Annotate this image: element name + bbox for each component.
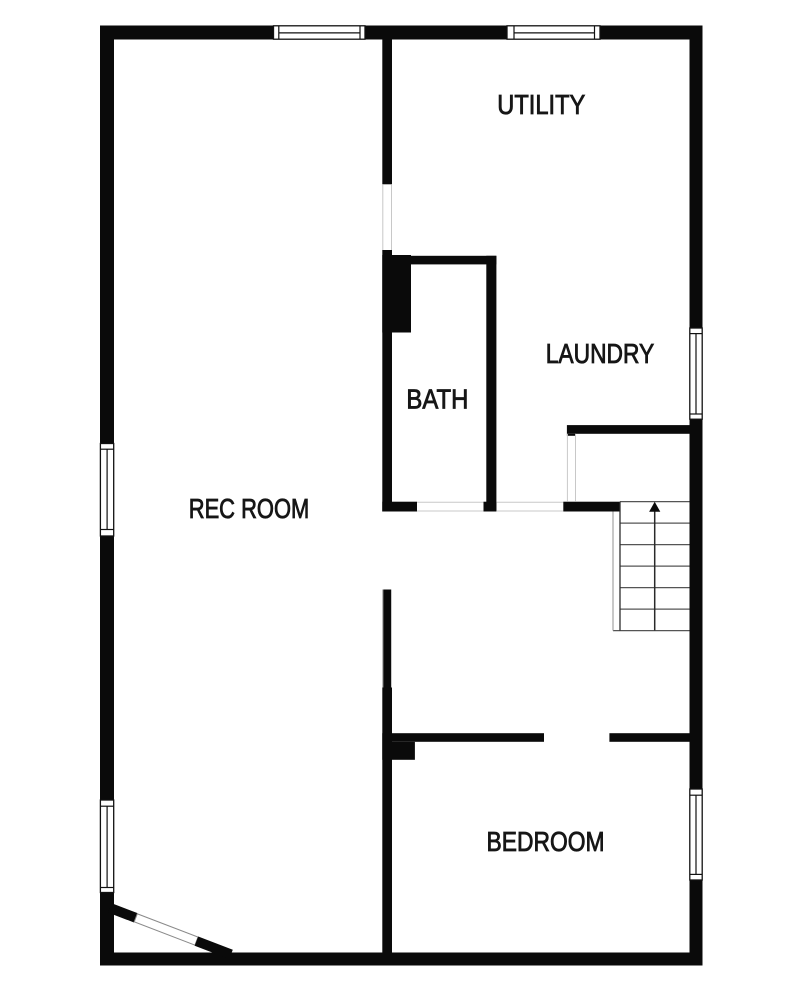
svg-text:LAUNDRY: LAUNDRY [546,338,655,369]
svg-text:BEDROOM: BEDROOM [487,826,605,857]
svg-text:UTILITY: UTILITY [497,89,585,120]
svg-text:REC ROOM: REC ROOM [189,493,310,524]
svg-text:BATH: BATH [406,384,468,415]
